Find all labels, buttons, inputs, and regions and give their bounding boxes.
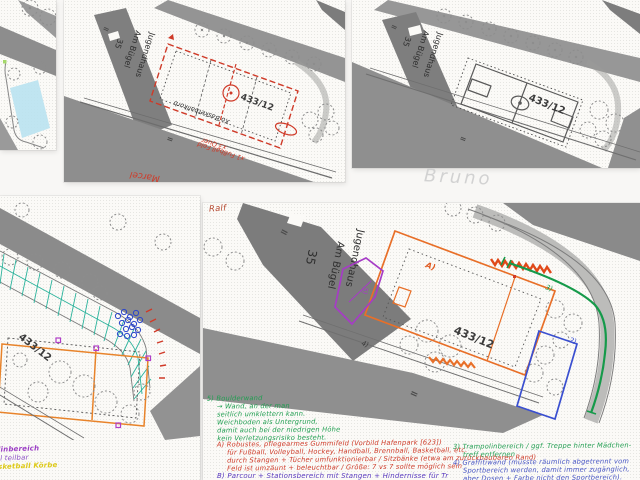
plan-sheet-bottom-left: 433/12 linbereich ll teilbar sketball Kö…: [0, 196, 200, 480]
plan-sheet-top-left: [0, 0, 56, 150]
parcel-number: 433/12: [239, 92, 275, 113]
road-band: [0, 26, 56, 76]
tree-icon: [110, 214, 126, 230]
note-basketball-fragment: sketball Körbe: [0, 461, 58, 471]
building-block: [602, 0, 640, 34]
marker-5: 5): [360, 287, 369, 295]
orange-field-outline: [0, 344, 148, 426]
red-dot: [230, 92, 233, 95]
author-signature-bruno: Bruno: [423, 165, 493, 190]
field-boundary-dotted: [160, 51, 291, 141]
scanned-plan-collage: Jugendhaus Am Bügel 35 = 433/12 Xo Baske…: [0, 0, 640, 480]
red-caret-mark: [168, 34, 174, 40]
note-line: 3) Trampolinbereich / ggf. Treppe hinter…: [453, 441, 631, 451]
tree-icon: [15, 203, 29, 217]
plan-drawing-top-left: [0, 0, 56, 150]
marker-a: A): [423, 260, 436, 272]
orange-bench-notch: [393, 287, 411, 307]
plan-drawing-marcel: Jugendhaus Am Bügel 35 = 433/12 Xo Baske…: [64, 0, 345, 182]
parcel-number: 433/12: [452, 324, 496, 352]
goal-box-left: [468, 79, 491, 97]
red-corner-dot: [513, 275, 516, 278]
marker-3: 3): [544, 283, 554, 293]
tree-icon: [226, 252, 244, 270]
plan-drawing-bottom-left: 433/12: [0, 196, 200, 440]
plan-sheet-bruno: Jugendhaus Am Bügel 35 = 433/12 =: [352, 0, 640, 168]
cyan-highlight-area: [10, 80, 50, 138]
road-band-bottom: [352, 62, 602, 168]
tree-dot: [29, 7, 32, 10]
parcel-number: 433/12: [527, 93, 567, 118]
note-trampolin: 3) Trampolinbereich / ggf. Treppe hinter…: [453, 441, 632, 459]
plan-sheet-marcel: Jugendhaus Am Bügel 35 = 433/12 Xo Baske…: [64, 0, 345, 182]
road-edge: [0, 386, 84, 438]
building-block: [316, 0, 345, 30]
green-mark: [3, 60, 7, 64]
note-trampolinbereich-fragment: linbereich: [0, 444, 39, 453]
plan-drawing-bruno: Jugendhaus Am Bügel 35 = 433/12 =: [352, 0, 640, 168]
road-corner: [150, 366, 200, 440]
jugendhaus-building: [237, 203, 411, 361]
orange-hatch-bottom: [429, 357, 475, 368]
road-band: [18, 0, 56, 38]
plan-sheet-ralf: Ralf Jugendhaus Am Bügel 35 = =: [203, 203, 640, 480]
tree-icon: [155, 234, 171, 250]
note-line: aber Dosen + Farbe nicht den Sportbereic…: [453, 473, 630, 480]
curved-path: [296, 62, 326, 142]
note-graffiti: 4) Graffitiwand (müsste räumlich abgetre…: [453, 457, 630, 480]
red-oval-mark: [274, 121, 298, 138]
tree-icon: [204, 238, 222, 256]
tree-icon: [8, 68, 20, 80]
road-band-top: [154, 0, 345, 82]
tree-cluster-field: [400, 320, 461, 372]
road-band-top: [0, 208, 200, 354]
note-parcour: B) Parcour + Stationsbereich mit Stangen…: [217, 472, 448, 480]
note-boulderwand: 5) Boulderwand → Wand, an der man seitli…: [207, 393, 341, 443]
center-dot: [519, 102, 521, 104]
